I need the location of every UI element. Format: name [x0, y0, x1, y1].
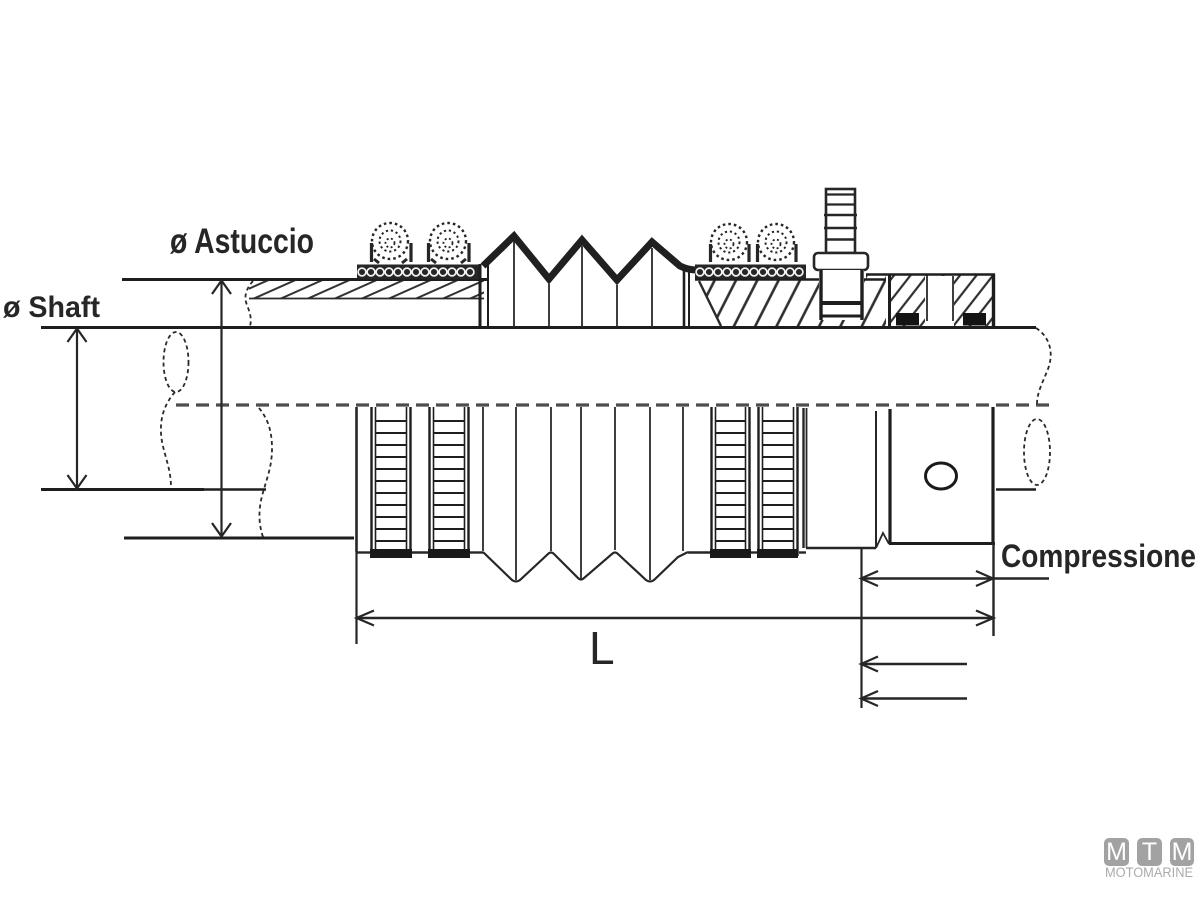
svg-text:ø Astuccio: ø Astuccio: [170, 222, 314, 261]
svg-text:Compressione: Compressione: [1001, 538, 1196, 574]
svg-text:M: M: [1172, 838, 1193, 866]
svg-text:T: T: [1142, 838, 1157, 866]
svg-text:MOTOMARINE: MOTOMARINE: [1105, 865, 1193, 880]
svg-text:L: L: [589, 622, 615, 674]
svg-text:ø Shaft: ø Shaft: [3, 291, 100, 324]
svg-text:M: M: [1106, 838, 1127, 866]
